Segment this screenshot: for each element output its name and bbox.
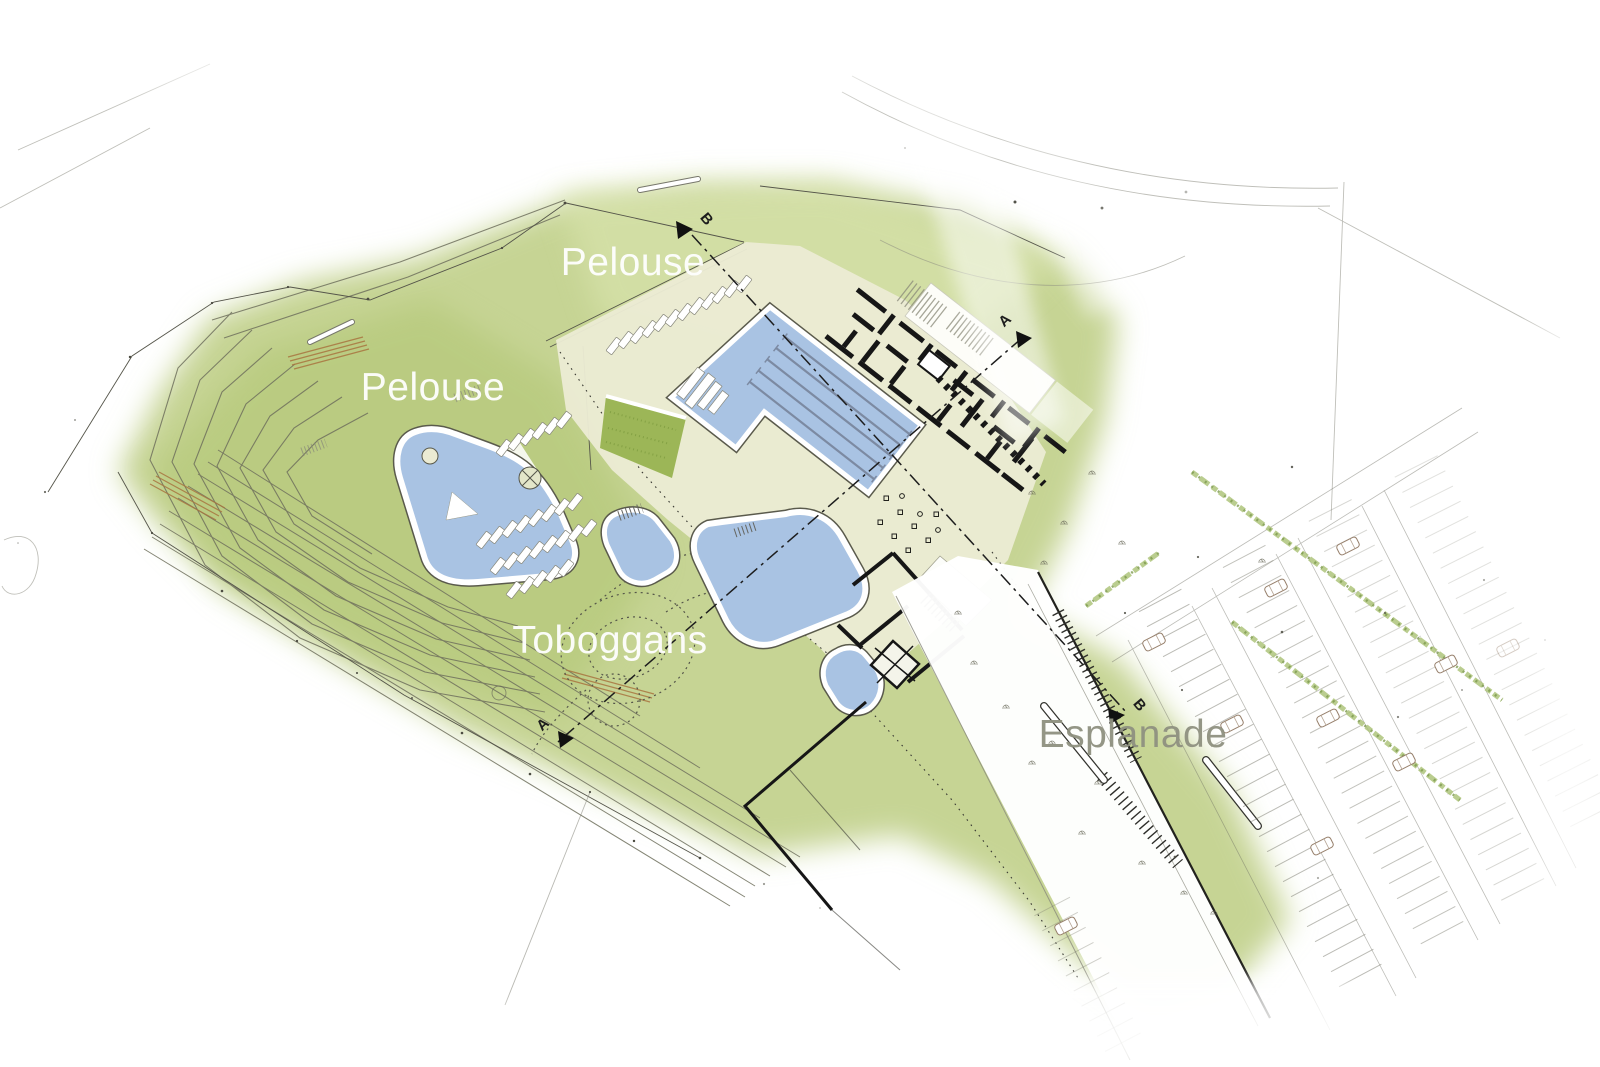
kiddie-pool bbox=[823, 648, 881, 712]
pool-island bbox=[422, 448, 438, 464]
label-esplanade: Esplanade bbox=[1039, 713, 1228, 756]
label-pelouse-top: Pelouse bbox=[561, 241, 705, 284]
stray-survey-line bbox=[505, 792, 590, 1005]
label-pelouse-left: Pelouse bbox=[361, 366, 505, 409]
parking-bays-row3 bbox=[1330, 510, 1524, 892]
site-plan: B B A A Pelouse Pelouse Toboggans Esplan… bbox=[0, 0, 1600, 1067]
label-toboggans: Toboggans bbox=[512, 619, 707, 662]
